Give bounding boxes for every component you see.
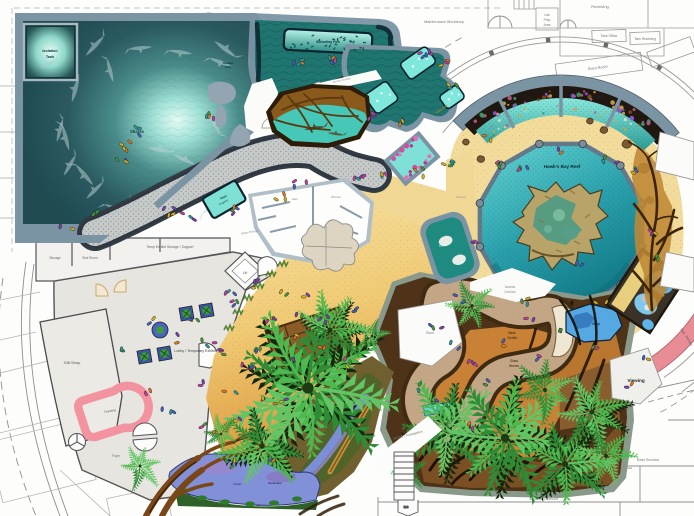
svg-text:Fish: Fish [225,65,231,69]
svg-text:East Service: East Service [637,457,660,462]
svg-text:Hawk's Bay Reef: Hawk's Bay Reef [544,164,581,169]
svg-text:Cichlid: Cichlid [507,336,517,340]
svg-text:Area: Area [544,23,551,27]
svg-text:Men: Men [292,197,298,201]
svg-text:Exit: Exit [404,505,409,509]
svg-text:Viewing: Viewing [627,378,644,383]
svg-text:Tank Receiving: Tank Receiving [634,37,656,41]
svg-text:Sick Room: Sick Room [82,256,98,260]
svg-text:Corridor: Corridor [504,290,516,294]
svg-text:Tank: Tank [46,55,55,59]
svg-text:Tank Office: Tank Office [601,34,618,38]
svg-text:Isolation: Isolation [42,49,58,53]
svg-text:Lobby / Temporary Exhibits: Lobby / Temporary Exhibits [174,349,217,353]
svg-text:Gift Shop: Gift Shop [64,360,81,365]
svg-text:Bank: Bank [508,331,516,335]
svg-text:Lab: Lab [544,13,550,17]
svg-text:Maintenance Workshop: Maintenance Workshop [424,20,464,24]
svg-text:Lift: Lift [243,271,248,275]
svg-text:Receiving: Receiving [591,4,609,9]
svg-text:Temp Exhibit Storage / Support: Temp Exhibit Storage / Support [147,245,194,249]
svg-text:Store: Store [426,331,435,335]
svg-text:Prep: Prep [544,18,551,22]
svg-text:Women: Women [331,195,342,199]
svg-text:Access: Access [505,285,516,289]
svg-text:Redscape: Redscape [268,481,282,485]
svg-text:Sharks: Sharks [130,129,145,134]
svg-text:Worms: Worms [509,364,519,368]
svg-text:Foyer: Foyer [112,454,121,458]
svg-text:Glass: Glass [510,359,519,363]
svg-text:Storage: Storage [49,256,60,260]
svg-text:Terrace: Terrace [456,195,466,199]
svg-text:Coral: Coral [233,482,241,486]
